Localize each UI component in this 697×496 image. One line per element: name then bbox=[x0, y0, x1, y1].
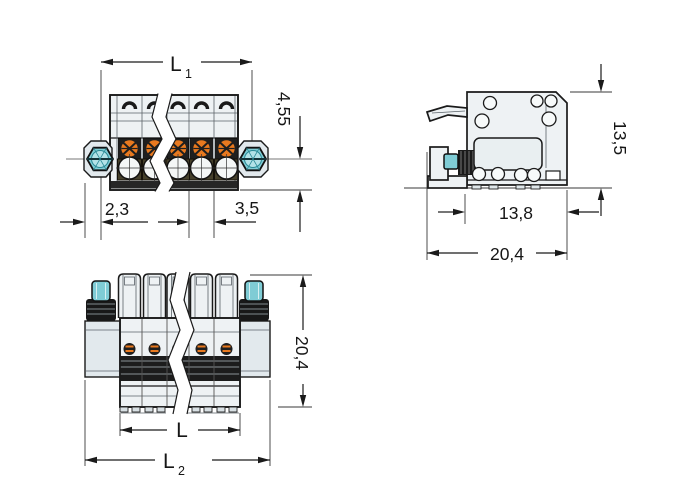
dim-label-l2-sub: 2 bbox=[178, 464, 185, 478]
plunger-channel bbox=[474, 138, 542, 170]
dim-label-20-4-side: 20,4 bbox=[490, 244, 524, 264]
dim-l2: L 2 bbox=[85, 450, 270, 478]
front-view: L 1 4,55 2,3 3,5 bbox=[60, 53, 312, 240]
dim-label-2-3: 2,3 bbox=[105, 199, 129, 219]
dim-4-55: 4,55 bbox=[274, 92, 303, 232]
screw-thread-right bbox=[239, 299, 269, 321]
dimension-drawing: L 1 4,55 2,3 3,5 bbox=[0, 0, 697, 496]
dim-l: L bbox=[120, 419, 240, 442]
rail-notch bbox=[546, 171, 560, 180]
dim-label-l2: L bbox=[163, 450, 175, 473]
dim-label-l: L bbox=[176, 419, 188, 442]
dim-label-l1: L bbox=[170, 53, 182, 76]
dim-20-4-top: 20,4 bbox=[292, 275, 312, 407]
dim-label-4-55: 4,55 bbox=[274, 92, 294, 126]
dim-label-13-8: 13,8 bbox=[499, 203, 533, 223]
screw-tip-side bbox=[444, 154, 458, 169]
fixing-flange-left bbox=[84, 141, 113, 177]
dim-label-l1-sub: 1 bbox=[185, 67, 192, 81]
screw-tip-right bbox=[245, 281, 263, 301]
dim-13-8: 13,8 bbox=[438, 203, 599, 223]
screw-tip-left bbox=[92, 281, 110, 301]
dim-label-20-4-top: 20,4 bbox=[292, 336, 312, 370]
flange-plate-left bbox=[85, 321, 121, 377]
contact-tube-2 bbox=[144, 274, 166, 318]
side-view: 13,5 13,8 20,4 bbox=[404, 64, 630, 264]
front-housing bbox=[110, 95, 240, 190]
dim-3-5: 3,5 bbox=[158, 198, 259, 225]
flange-plate-right bbox=[239, 321, 270, 377]
screw-thread-left bbox=[86, 299, 116, 321]
contact-tube-1 bbox=[119, 274, 141, 318]
dim-20-4-side: 20,4 bbox=[427, 244, 567, 264]
dim-13-5: 13,5 bbox=[598, 64, 630, 216]
dim-l1: L 1 bbox=[101, 53, 252, 81]
contact-tube-3 bbox=[191, 274, 213, 318]
top-view: 20,4 L L 2 bbox=[85, 272, 312, 478]
release-lever bbox=[427, 106, 467, 121]
dim-label-3-5: 3,5 bbox=[235, 198, 259, 218]
dim-label-13-5: 13,5 bbox=[610, 121, 630, 155]
dim-2-3: 2,3 bbox=[60, 199, 148, 225]
technical-drawing-canvas: L 1 4,55 2,3 3,5 bbox=[0, 0, 697, 496]
contact-tube-4 bbox=[216, 274, 238, 318]
side-housing bbox=[427, 92, 567, 189]
fixing-flange-right bbox=[238, 141, 268, 177]
